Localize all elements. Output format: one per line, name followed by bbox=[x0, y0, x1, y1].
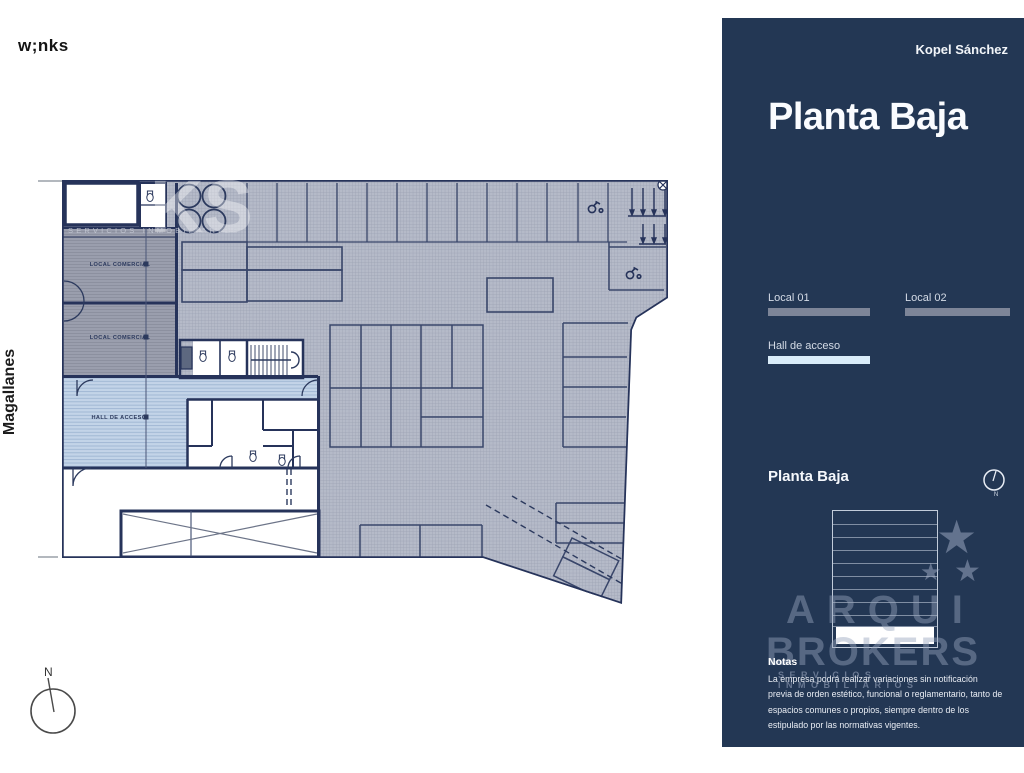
legend-label: Local 01 bbox=[768, 292, 870, 304]
legend-label: Hall de acceso bbox=[768, 340, 870, 352]
legend-item-local-01: Local 01 bbox=[768, 292, 870, 316]
watermark-arqui: ARQUI bbox=[786, 588, 975, 633]
compass: N bbox=[31, 665, 75, 733]
compass-north-label: N bbox=[44, 665, 53, 679]
section-title: Planta Baja bbox=[768, 468, 849, 485]
plan-watermark-tagline: SERVICIOS INMOBILIARIOS bbox=[68, 226, 241, 235]
lot-extension-lines bbox=[38, 181, 62, 557]
street-label: Magallanes bbox=[1, 349, 18, 435]
watermark-brokers: BROKERS bbox=[766, 630, 980, 675]
legend-swatch-hall bbox=[768, 356, 870, 364]
legend-swatch-local-02 bbox=[905, 308, 1010, 316]
plan-watermark-letters: KS bbox=[150, 165, 253, 248]
floor-plan-drawing: KS SERVICIOS INMOBILIARIOS LOCAL COMERCI… bbox=[0, 0, 722, 768]
front-room bbox=[65, 183, 138, 225]
legend-item-local-02: Local 02 bbox=[905, 292, 1010, 316]
sidebar-compass-label: N bbox=[994, 492, 998, 498]
star-icon: ★ bbox=[920, 558, 942, 587]
star-icon: ★ bbox=[954, 554, 981, 589]
legend-item-hall: Hall de acceso bbox=[768, 340, 870, 364]
room-label-local-2: LOCAL COMERCIAL bbox=[90, 335, 151, 341]
legend-swatch-local-01 bbox=[768, 308, 870, 316]
ramp bbox=[121, 511, 319, 557]
notes-body: La empresa podrá realizar variaciones si… bbox=[768, 672, 1004, 734]
client-name: Kopel Sánchez bbox=[916, 42, 1008, 57]
info-sidebar: Kopel Sánchez Planta Baja Local 01 Local… bbox=[722, 18, 1024, 747]
notes-title: Notas bbox=[768, 656, 797, 668]
room-label-local-1: LOCAL COMERCIAL bbox=[90, 262, 151, 268]
elevator bbox=[181, 347, 192, 369]
floor-plan-area: w;nks bbox=[0, 0, 722, 768]
page-title: Planta Baja bbox=[768, 96, 967, 139]
winks-logo: w;nks bbox=[18, 36, 69, 56]
sidebar-compass-icon: N bbox=[980, 468, 1010, 502]
page: w;nks bbox=[0, 0, 1024, 768]
legend-label: Local 02 bbox=[905, 292, 1010, 304]
room-label-hall: HALL DE ACCESO bbox=[91, 415, 146, 421]
